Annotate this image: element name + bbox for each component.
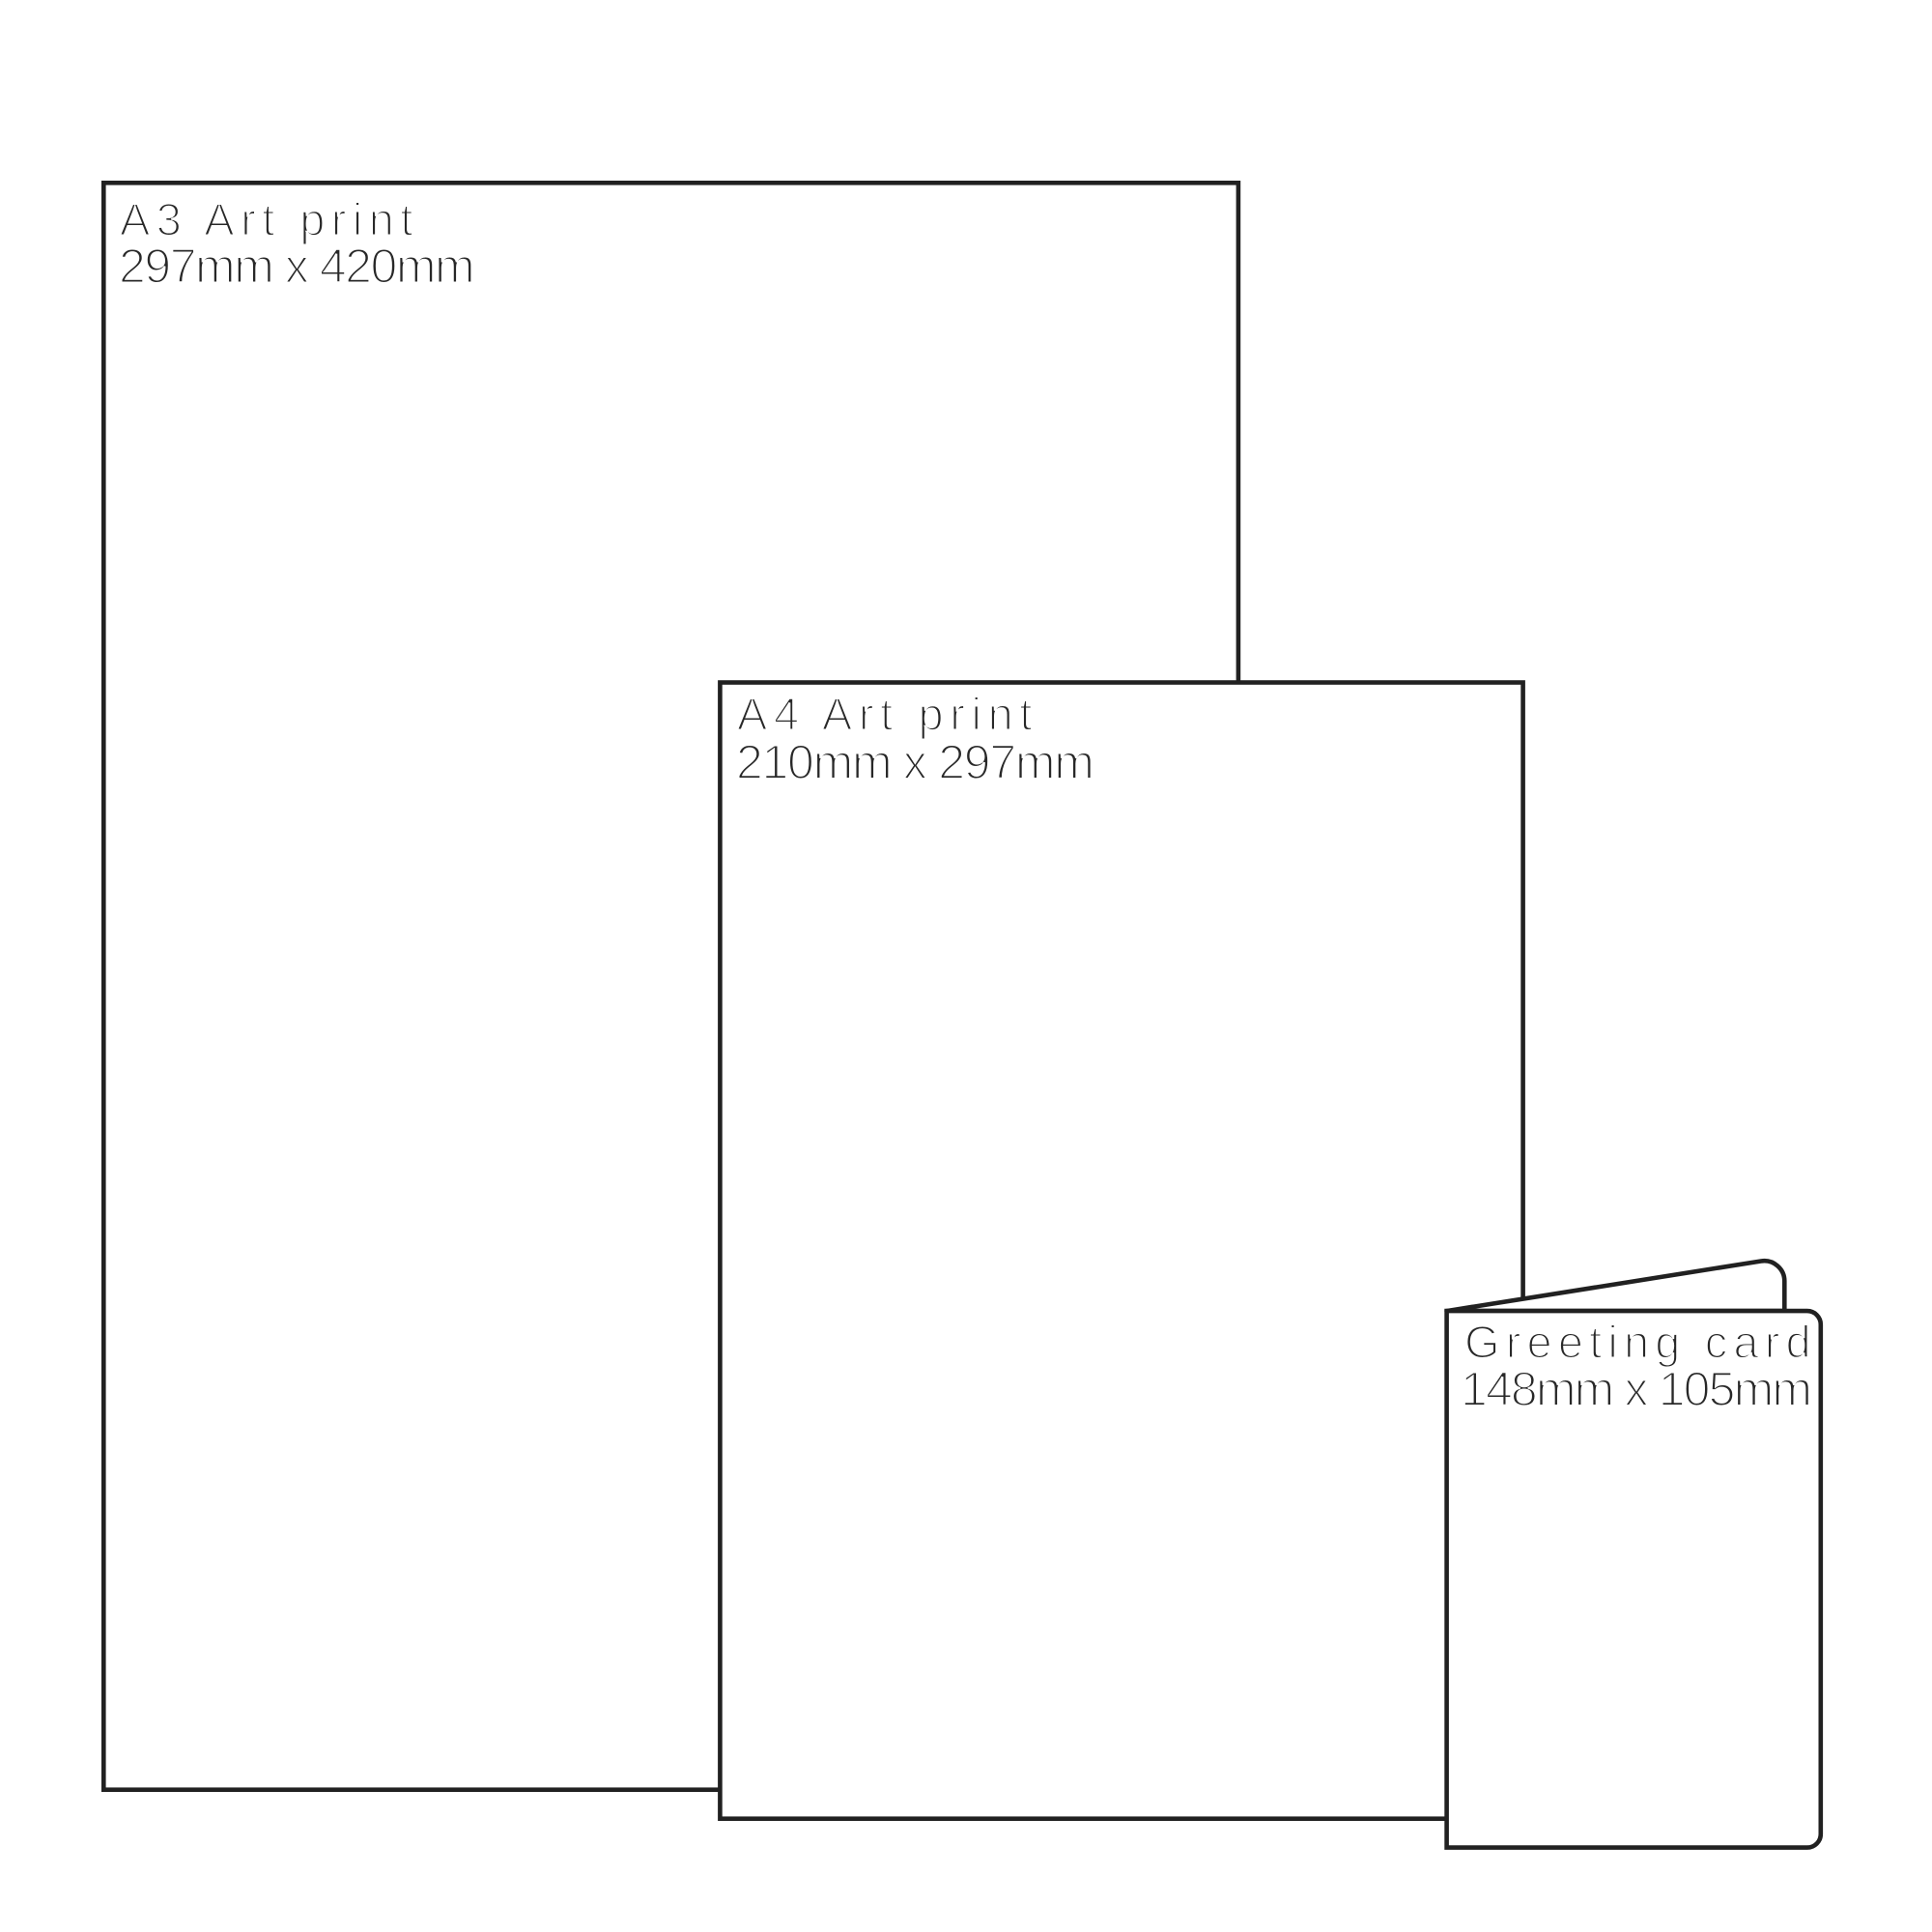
svg-text:A3 Art print: A3 Art print (120, 193, 419, 244)
svg-text:A4 Art print: A4 Art print (737, 688, 1038, 739)
svg-text:148mm x 105mm: 148mm x 105mm (1461, 1362, 1810, 1416)
svg-text:210mm x 297mm: 210mm x 297mm (736, 735, 1094, 789)
svg-text:Greeting card: Greeting card (1464, 1317, 1817, 1368)
svg-text:297mm x 420mm: 297mm x 420mm (119, 240, 473, 294)
